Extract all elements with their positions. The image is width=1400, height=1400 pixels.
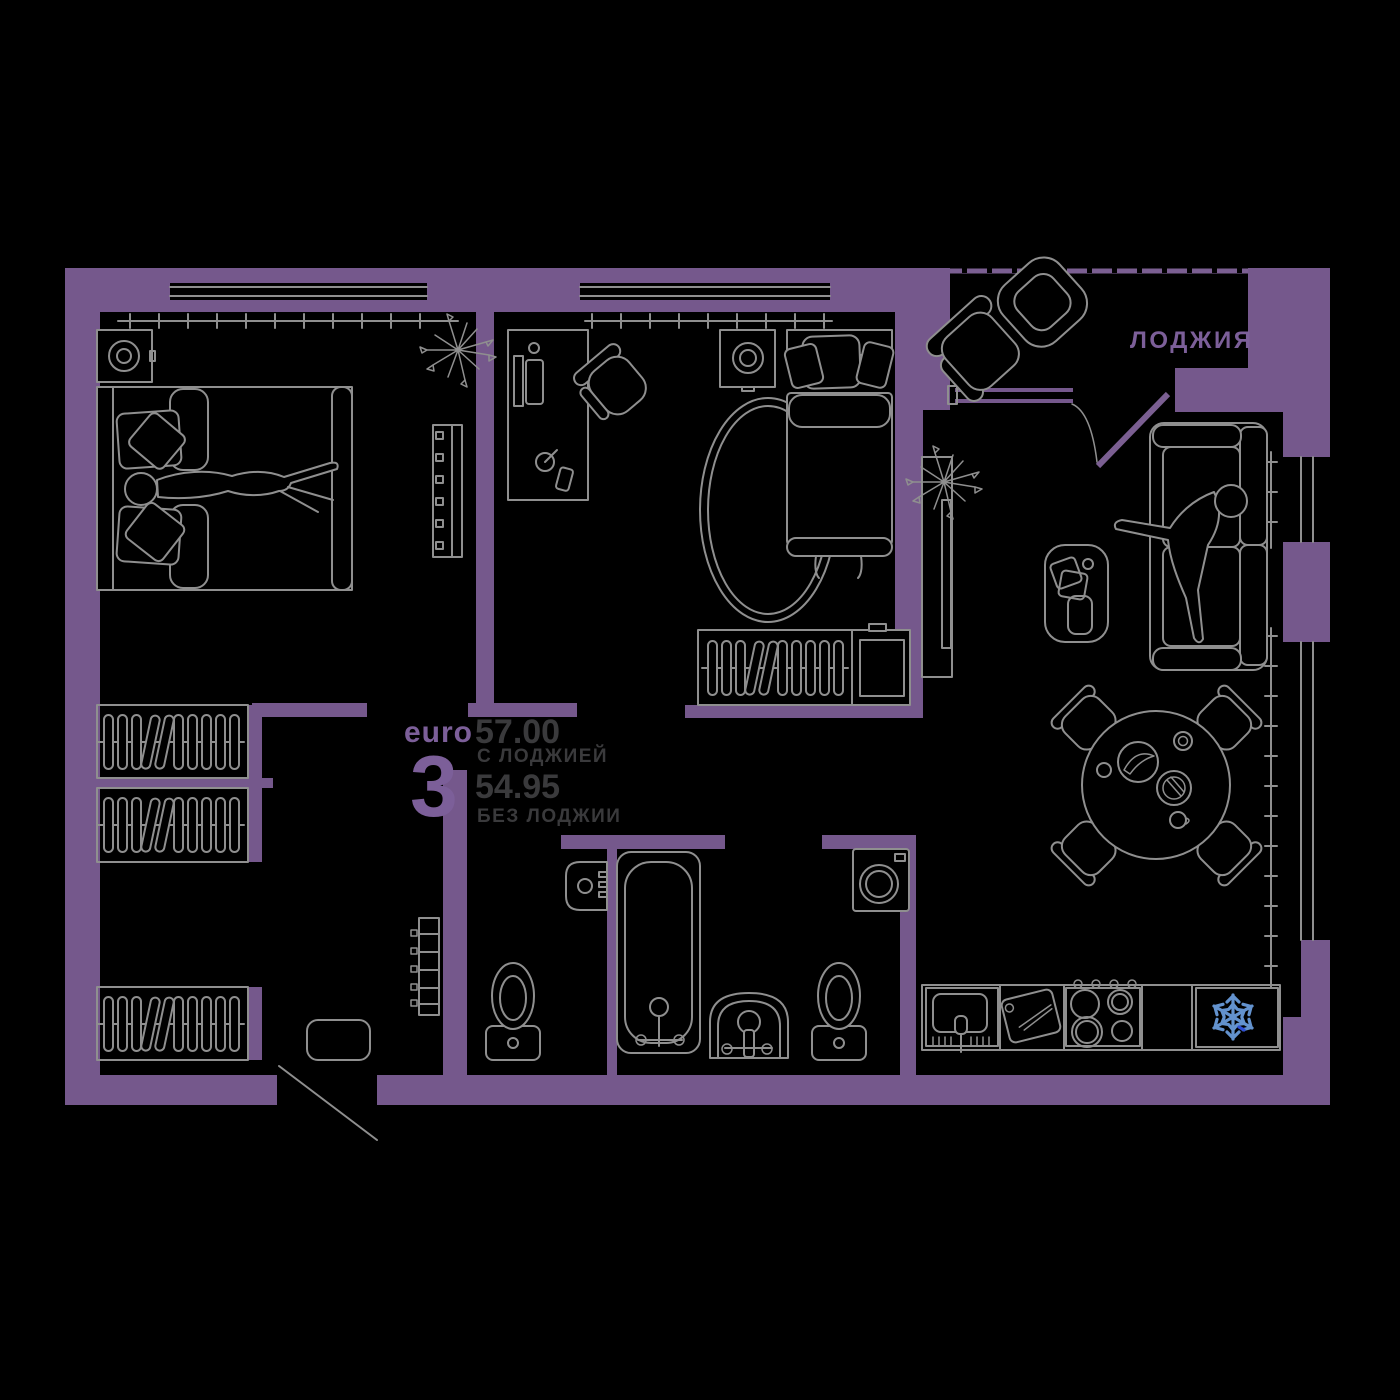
wardrobe-hangers <box>698 624 910 705</box>
bathtub <box>617 852 700 1053</box>
floor-plan-canvas: euro 3 57.00 С ЛОДЖИЕЙ 54.95 БЕЗ ЛОДЖИИ … <box>0 0 1400 1400</box>
pillow <box>116 501 187 566</box>
single-bed <box>784 330 895 578</box>
dresser <box>433 425 462 557</box>
window-opening <box>580 283 830 300</box>
tv <box>942 500 951 648</box>
pillow <box>116 410 187 471</box>
bathroom-sink <box>710 993 788 1058</box>
refrigerator <box>1196 988 1278 1047</box>
area-without-loggia-label: БЕЗ ЛОДЖИИ <box>477 806 621 827</box>
area-with-loggia-label: С ЛОДЖИЕЙ <box>477 745 608 767</box>
desk <box>508 330 588 500</box>
double-bed <box>97 387 352 590</box>
area-without-loggia-value: 54.95 <box>475 768 560 806</box>
window-opening <box>170 283 427 300</box>
loggia-room-label: ЛОДЖИЯ <box>1130 327 1253 354</box>
nightstand-with-lamp <box>720 330 775 391</box>
kitchen-sink <box>926 988 998 1052</box>
stove <box>1066 980 1140 1047</box>
wall-hung-sink <box>566 862 607 910</box>
room-kitchen <box>922 980 1280 1052</box>
loggia-open-edge <box>950 268 1248 273</box>
unit-rooms-count: 3 <box>410 739 458 835</box>
floor-plan: euro 3 57.00 С ЛОДЖИЕЙ 54.95 БЕЗ ЛОДЖИИ … <box>0 0 1400 1400</box>
nightstand-with-lamp <box>97 330 155 382</box>
washing-machine <box>853 849 909 911</box>
